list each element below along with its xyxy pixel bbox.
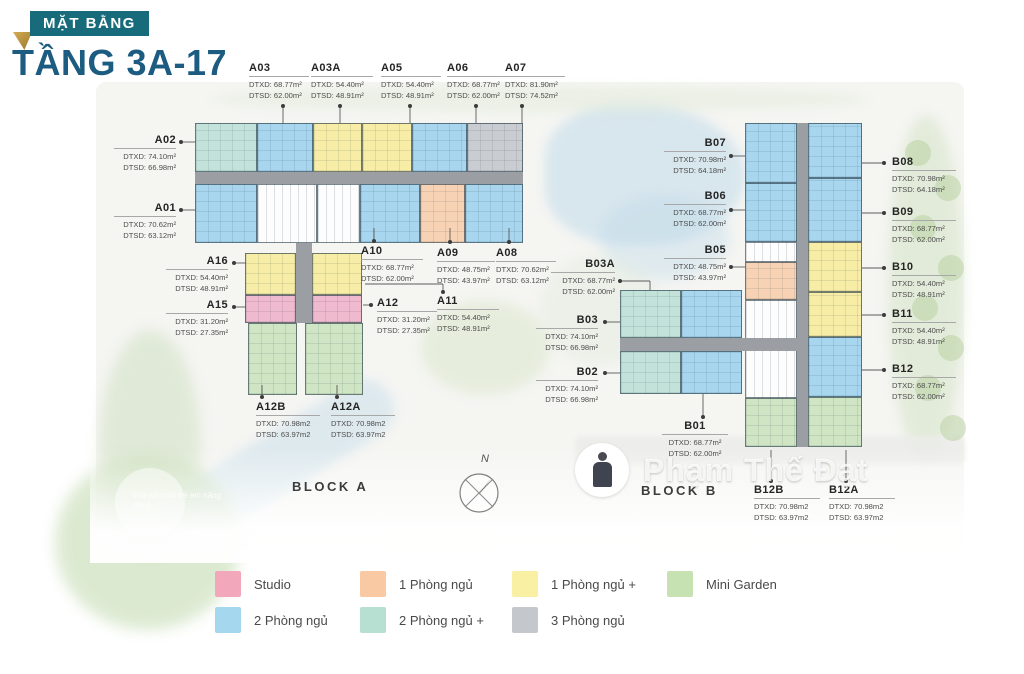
legend-label: 2 Phòng ngủ [254, 613, 328, 628]
legend-swatch [215, 571, 241, 597]
legend-swatch [360, 607, 386, 633]
legend-label: 2 Phòng ngủ + [399, 613, 484, 628]
legend-item: Mini Garden [667, 571, 777, 597]
legend-label: Studio [254, 577, 291, 592]
legend-item: 1 Phòng ngủ [360, 571, 473, 597]
page-title: TẦNG 3A-17 [12, 42, 227, 84]
legend-swatch [512, 607, 538, 633]
legend-swatch [360, 571, 386, 597]
title-badge: MẶT BẰNG [30, 11, 149, 36]
legend-item: 3 Phòng ngủ [512, 607, 625, 633]
legend-label: Mini Garden [706, 577, 777, 592]
legend: Studio1 Phòng ngủ1 Phòng ngủ +Mini Garde… [0, 0, 1024, 674]
legend-swatch [215, 607, 241, 633]
legend-item: Studio [215, 571, 291, 597]
legend-label: 1 Phòng ngủ [399, 577, 473, 592]
legend-item: 2 Phòng ngủ [215, 607, 328, 633]
legend-label: 3 Phòng ngủ [551, 613, 625, 628]
legend-swatch [667, 571, 693, 597]
legend-item: 2 Phòng ngủ + [360, 607, 484, 633]
legend-swatch [512, 571, 538, 597]
legend-item: 1 Phòng ngủ + [512, 571, 636, 597]
floorplan-page: khu vui chơi trẻ em năng động A03DTXD: 6… [0, 0, 1024, 674]
legend-label: 1 Phòng ngủ + [551, 577, 636, 592]
